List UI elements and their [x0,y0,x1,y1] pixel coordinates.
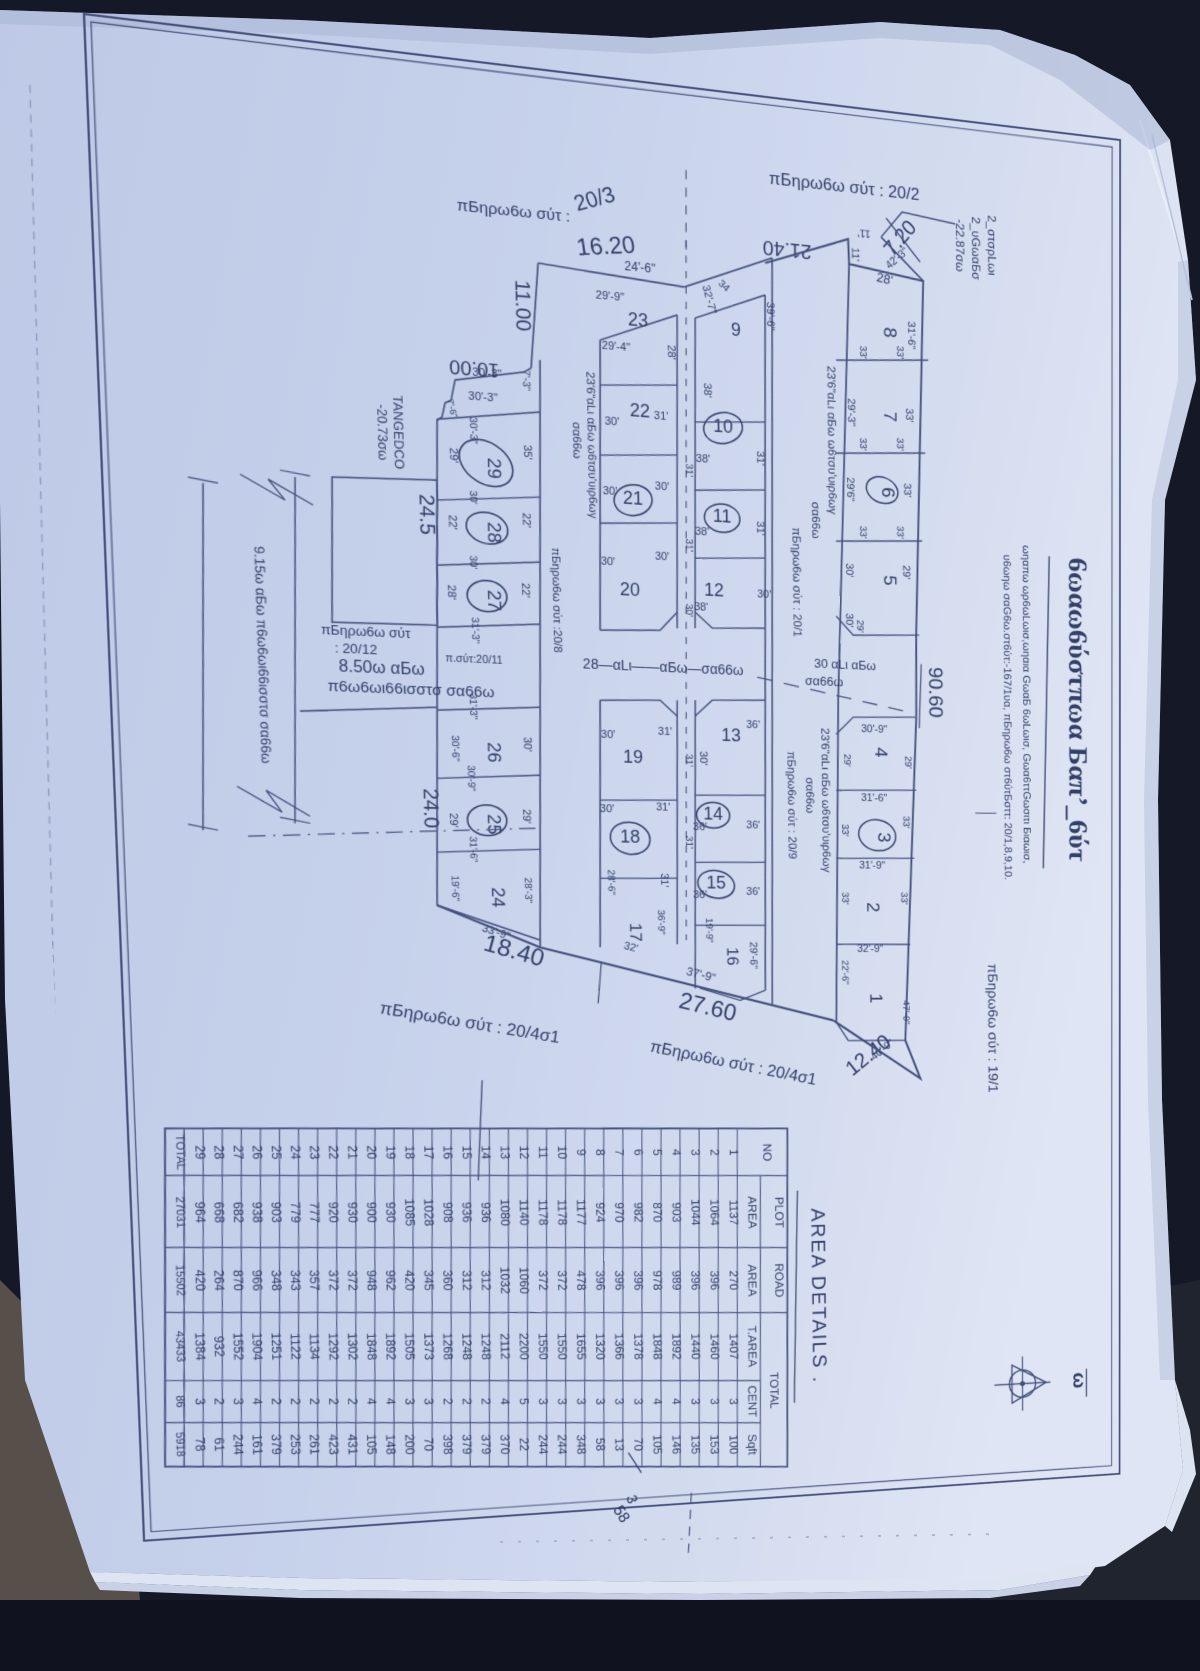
svg-text:28'-3": 28'-3" [522,877,535,903]
svg-text:29': 29' [842,754,853,767]
svg-text:396: 396 [707,1270,720,1290]
svg-text:π6ω6ωι66ισστσ σα66ω: π6ω6ωι66ισστσ σα66ω [327,677,495,701]
svg-text:146: 146 [669,1434,682,1454]
svg-text:29: 29 [483,457,505,479]
svg-text:31': 31' [659,873,672,887]
svg-text:ωηαπω ωρ6ωLωισ,ωηαια GωαБ 6: ωηαπω ωρ6ωLωισ,ωηαια GωαБ 6ωLωισ, Gωα6ττ… [1020,545,1032,864]
svg-text:370: 370 [497,1434,511,1455]
svg-text:-20.73σω: -20.73σω [374,404,390,461]
svg-text:372: 372 [555,1270,569,1291]
svg-text:5: 5 [880,575,900,587]
svg-text:1080: 1080 [497,1199,511,1227]
svg-text:920: 920 [325,1202,340,1223]
svg-text:7: 7 [880,411,900,423]
svg-text:1407: 1407 [726,1333,739,1360]
svg-text:31': 31' [755,451,768,466]
svg-text:3: 3 [874,832,894,843]
svg-text:1032: 1032 [497,1267,511,1295]
svg-text:1044: 1044 [688,1199,702,1226]
svg-text:33': 33' [901,816,912,829]
svg-text:4: 4 [364,1398,378,1406]
svg-text:30': 30' [603,484,618,498]
svg-text:AREA: AREA [745,1264,758,1297]
svg-text:σα66ω: σα66ω [570,421,584,459]
svg-text:398: 398 [440,1434,454,1455]
svg-text:30'-9": 30'-9" [465,765,478,791]
svg-text:AREA: AREA [745,1196,758,1229]
svg-text:1178: 1178 [554,1199,568,1226]
svg-text:2: 2 [440,1398,454,1406]
svg-text:1: 1 [866,993,886,1003]
svg-text:9.15ω αБω π6ω6ωι66ισστσ σα6: 9.15ω αБω π6ω6ωι66ισστσ σα66ω [251,546,274,764]
svg-text:30': 30' [844,563,856,578]
svg-text:28—αLι——αБω—σα66ω: 28—αLι——αБω—σα66ω [583,656,744,679]
svg-text:32'-7": 32'-7" [700,284,720,315]
svg-text:903: 903 [268,1202,283,1224]
svg-text:29': 29' [520,809,533,824]
svg-text:3: 3 [688,1398,701,1405]
svg-text:348: 348 [268,1270,283,1292]
svg-text:22'-6": 22'-6" [840,960,851,984]
svg-text:148: 148 [383,1434,398,1455]
svg-text:3: 3 [727,1398,740,1405]
svg-text:17: 17 [421,1145,435,1159]
svg-text:70: 70 [631,1437,644,1451]
svg-text:930: 930 [383,1202,398,1223]
svg-text:πБηρω6ω σύτ : 20/9: πБηρω6ω σύτ : 20/9 [784,751,798,859]
svg-text:27031: 27031 [173,1196,188,1228]
svg-text:: 20/12: : 20/12 [334,641,377,658]
svg-text:CENT: CENT [745,1385,758,1418]
svg-text:345: 345 [421,1270,436,1291]
svg-text:28': 28' [445,585,459,601]
svg-text:1366: 1366 [612,1333,626,1360]
svg-text:964: 964 [192,1201,208,1223]
svg-text:779: 779 [287,1202,302,1223]
svg-text:2: 2 [326,1398,340,1406]
svg-text:105: 105 [650,1434,663,1455]
svg-text:23: 23 [306,1145,321,1159]
svg-text:πБηρω6ω σύτ : 19/1: πБηρω6ω σύτ : 19/1 [985,964,1001,1093]
svg-text:3: 3 [536,1398,550,1405]
svg-text:16: 16 [440,1145,454,1159]
svg-text:31': 31' [656,800,670,813]
svg-text:1085: 1085 [402,1198,417,1226]
svg-text:19: 19 [383,1145,398,1159]
svg-text:σα66ω: σα66ω [803,777,816,813]
svg-text:30': 30' [467,490,480,504]
svg-text:1550: 1550 [535,1333,549,1361]
svg-text:24: 24 [488,887,509,908]
svg-text:15502: 15502 [173,1264,188,1296]
svg-text:870: 870 [650,1202,664,1222]
svg-text:TOTAL: TOTAL [767,1372,780,1409]
svg-text:2: 2 [707,1149,720,1156]
svg-text:39'-6": 39'-6" [764,302,777,332]
svg-text:396: 396 [631,1270,645,1291]
svg-text:πБηρω6ω σύτ : 20/1: πБηρω6ω σύτ : 20/1 [789,527,803,637]
svg-text:908: 908 [440,1202,455,1223]
svg-text:34: 34 [716,277,732,294]
svg-text:948: 948 [363,1270,378,1291]
svg-text:29'6": 29'6" [845,477,857,502]
svg-text:3: 3 [421,1398,435,1406]
svg-text:420: 420 [192,1269,208,1291]
svg-text:1848: 1848 [363,1332,378,1360]
svg-text:28': 28' [876,270,894,288]
svg-text:31': 31' [683,463,695,477]
svg-text:31': 31' [684,754,696,767]
svg-text:105: 105 [363,1434,378,1455]
svg-text:19: 19 [623,747,643,768]
svg-text:-22.87σω: -22.87σω [953,218,966,272]
svg-text:1505: 1505 [402,1332,417,1360]
svg-text:24.0: 24.0 [418,788,442,828]
svg-text:372: 372 [325,1270,340,1291]
svg-text:Sqft: Sqft [745,1434,758,1456]
svg-text:58: 58 [593,1437,607,1451]
svg-text:1122: 1122 [287,1333,302,1361]
svg-text:3: 3 [402,1398,416,1406]
svg-text:4: 4 [669,1398,682,1405]
svg-text:420: 420 [402,1270,417,1291]
svg-text:2: 2 [287,1398,302,1406]
svg-text:π.σύτ:20/11: π.σύτ:20/11 [445,652,503,667]
svg-text:ω: ω [1069,1372,1089,1389]
svg-text:43433: 43433 [173,1331,188,1363]
svg-text:312: 312 [478,1270,492,1291]
svg-text:2: 2 [478,1398,492,1405]
svg-text:4: 4 [249,1398,264,1406]
svg-text:9: 9 [574,1149,588,1156]
svg-text:1460: 1460 [707,1333,720,1360]
svg-text:5: 5 [650,1149,663,1156]
svg-text:31'-3": 31'-3" [469,617,482,644]
svg-text:38': 38' [695,524,709,538]
svg-text:10: 10 [555,1145,569,1159]
svg-text:1440: 1440 [688,1333,701,1360]
svg-text:1: 1 [726,1149,739,1156]
svg-text:11: 11 [713,505,732,527]
svg-text:4: 4 [669,1149,682,1156]
svg-text:19'-6": 19'-6" [449,875,462,901]
svg-text:28: 28 [211,1145,226,1160]
svg-text:6: 6 [631,1149,644,1156]
svg-text:90.60: 90.60 [924,667,945,719]
svg-text:38': 38' [702,383,715,399]
svg-text:27: 27 [230,1145,245,1160]
svg-text:AREA DETAILS .: AREA DETAILS . [807,1208,830,1384]
svg-text:244: 244 [230,1434,245,1456]
svg-text:33': 33' [895,526,906,540]
svg-text:18: 18 [402,1145,417,1159]
svg-text:78: 78 [192,1437,207,1452]
svg-text:29'-9": 29'-9" [596,288,625,304]
svg-text:100: 100 [726,1434,739,1454]
svg-text:360: 360 [440,1270,454,1291]
svg-text:31': 31' [654,409,669,423]
svg-text:58: 58 [609,1503,633,1526]
svg-text:30'-3": 30'-3" [472,365,502,381]
svg-text:33': 33' [899,892,910,905]
svg-text:1248: 1248 [478,1333,492,1361]
svg-text:12: 12 [516,1145,530,1159]
svg-text:8.50ω αБω: 8.50ω αБω [339,657,425,679]
svg-text:379: 379 [268,1434,283,1456]
svg-text:33': 33' [895,345,906,359]
svg-text:3: 3 [192,1398,207,1406]
svg-text:24: 24 [287,1145,302,1159]
svg-text:8: 8 [880,326,900,338]
svg-text:υ6ωηω σαG6ω.στ6ύτ:-167/1υα,: υ6ωηω σαG6ω.στ6ύτ:-167/1υα, πБηρω6ω στ6ύ… [1001,554,1014,880]
svg-text:932: 932 [211,1336,226,1358]
svg-text:962: 962 [383,1270,398,1291]
svg-text:343: 343 [287,1270,302,1292]
svg-text:372: 372 [344,1270,359,1291]
svg-text:12: 12 [704,579,724,600]
svg-text:28'-6": 28'-6" [605,870,617,896]
svg-text:30': 30' [601,728,616,741]
svg-text:11.00: 11.00 [510,279,534,332]
svg-text:21: 21 [344,1145,359,1159]
svg-text:20: 20 [364,1145,379,1159]
svg-text:37'-9": 37'-9" [685,965,717,985]
svg-text:22': 22' [446,514,460,530]
svg-text:3: 3 [230,1398,245,1406]
svg-text:30'-3": 30'-3" [468,389,498,405]
svg-text:1550: 1550 [554,1333,568,1360]
svg-text:2_υGωαБσ: 2_υGωαБσ [969,216,982,280]
svg-text:1378: 1378 [631,1333,645,1360]
svg-text:903: 903 [669,1202,682,1222]
svg-text:6ωαω6ύστπωα Бαπ’_6ύτ: 6ωαω6ύστπωα Бαπ’_6ύτ [1063,557,1093,862]
svg-text:61: 61 [211,1437,226,1452]
svg-text:2: 2 [345,1398,359,1406]
svg-text:31': 31' [658,725,672,738]
svg-text:2_στσρLωι: 2_στσρLωι [985,215,998,277]
svg-text:5: 5 [516,1398,530,1405]
svg-text:πБηρω6ω σύτ :: πБηρω6ω σύτ : [457,195,571,226]
svg-text:2: 2 [863,902,883,912]
svg-text:1655: 1655 [574,1333,588,1360]
svg-text:33': 33' [858,345,869,359]
svg-text:23'6"αLι αБω ω6τσυ'υιρ6ωγ: 23'6"αLι αБω ω6τσυ'υιρ6ωγ [824,365,839,515]
svg-text:σα66ω: σα66ω [805,674,843,690]
svg-text:1552: 1552 [230,1332,246,1361]
svg-text:36': 36' [746,885,760,898]
svg-text:264: 264 [211,1270,227,1292]
svg-text:σα66ω: σα66ω [809,501,822,539]
svg-text:900: 900 [363,1202,378,1223]
svg-text:23'6"αLι αБω ω6τσυ'υιρ6ωγ: 23'6"αLι αБω ω6τσυ'υιρ6ωγ [584,371,600,519]
svg-text:86: 86 [174,1395,188,1408]
svg-text:30': 30' [655,479,670,493]
svg-text:1134: 1134 [306,1333,321,1360]
svg-text:372: 372 [535,1270,549,1291]
svg-text:1268: 1268 [440,1332,455,1360]
svg-text:161: 161 [249,1434,264,1456]
svg-text:1177: 1177 [574,1199,588,1226]
svg-text:47'-0": 47'-0" [901,1000,912,1024]
svg-text:24.5: 24.5 [414,493,438,535]
svg-text:682: 682 [230,1202,245,1224]
svg-text:1302: 1302 [344,1332,359,1360]
svg-text:668: 668 [211,1202,227,1224]
svg-text:πБηρω6ω σύτ: πБηρω6ω σύτ [321,622,411,641]
svg-text:936: 936 [459,1202,473,1223]
svg-text:11: 11 [535,1146,549,1159]
svg-text:29': 29' [447,813,461,828]
svg-text:30'-9": 30'-9" [861,722,888,735]
svg-text:930: 930 [344,1202,359,1223]
svg-text:7: 7 [612,1149,626,1156]
svg-text:8: 8 [593,1149,607,1156]
svg-text:32': 32' [623,939,640,955]
svg-text:1848: 1848 [650,1333,664,1360]
svg-text:30': 30' [684,603,696,617]
svg-text:431: 431 [344,1434,359,1455]
svg-text:29': 29' [447,447,461,463]
svg-text:1904: 1904 [249,1332,265,1361]
svg-text:924: 924 [593,1202,607,1223]
svg-text:24'-6": 24'-6" [624,260,655,277]
svg-text:396: 396 [593,1270,607,1291]
svg-text:396: 396 [612,1270,626,1291]
svg-text:2200: 2200 [516,1333,530,1361]
svg-text:30': 30' [605,414,620,428]
svg-text:1137: 1137 [726,1199,739,1225]
svg-text:30': 30' [698,751,711,766]
svg-text:30': 30' [521,737,534,752]
svg-text:33': 33' [858,526,869,540]
svg-text:135: 135 [688,1434,701,1454]
svg-text:4: 4 [383,1398,397,1406]
svg-text:30': 30' [844,613,856,628]
svg-text:3: 3 [707,1398,720,1405]
svg-text:20/3: 20/3 [571,183,619,217]
svg-text:29'-4": 29'-4" [602,338,631,354]
svg-text:33': 33' [902,483,914,498]
svg-text:2: 2 [459,1398,473,1406]
svg-text:1373: 1373 [421,1332,436,1360]
svg-text:1384: 1384 [191,1332,207,1361]
svg-text:9: 9 [731,319,741,341]
svg-text:1251: 1251 [268,1332,283,1361]
svg-text:4: 4 [650,1398,663,1405]
svg-text:20: 20 [620,579,640,601]
svg-text:36': 36' [693,888,707,901]
svg-text:29': 29' [901,565,913,580]
svg-text:28: 28 [483,521,505,543]
svg-text:1178: 1178 [535,1199,549,1226]
svg-text:30': 30' [655,549,670,563]
svg-text:16.20: 16.20 [574,231,636,261]
svg-text:396: 396 [688,1270,701,1290]
svg-text:978: 978 [650,1270,664,1291]
svg-text:31'-6": 31'-6" [906,321,918,350]
svg-text:11': 11' [858,227,871,241]
svg-text:36': 36' [693,820,707,833]
svg-text:22: 22 [325,1145,340,1159]
svg-text:261: 261 [306,1434,321,1455]
svg-text:29': 29' [903,756,914,769]
svg-text:982: 982 [631,1202,645,1223]
svg-text:16: 16 [723,947,741,965]
svg-text:270: 270 [726,1270,739,1290]
svg-text:26: 26 [483,742,505,763]
svg-text:1248: 1248 [459,1333,474,1361]
svg-text:36'-9": 36'-9" [655,910,667,935]
svg-text:30'-3": 30'-3" [467,417,480,445]
svg-text:27.60: 27.60 [676,987,739,1027]
svg-text:989: 989 [669,1270,682,1290]
svg-text:29'-3": 29'-3" [846,398,858,427]
svg-text:153: 153 [707,1434,720,1454]
svg-text:18: 18 [620,826,640,847]
svg-text:TANGEDCO: TANGEDCO [389,395,406,470]
svg-text:3: 3 [688,1149,701,1156]
svg-text:30 αLι αБω: 30 αLι αБω [814,657,876,674]
svg-text:30': 30' [757,588,771,601]
svg-text:36': 36' [746,718,760,731]
svg-text:3: 3 [612,1398,625,1405]
svg-text:970: 970 [612,1202,626,1223]
svg-text:1060: 1060 [516,1267,530,1295]
svg-text:36': 36' [746,818,760,831]
svg-text:3: 3 [593,1398,606,1405]
svg-text:32'-9": 32'-9" [857,943,883,955]
svg-text:5918: 5918 [173,1432,188,1457]
svg-text:3: 3 [631,1398,644,1405]
svg-text:1140: 1140 [516,1199,530,1226]
svg-text:200: 200 [402,1434,417,1455]
svg-text:70: 70 [421,1437,435,1451]
svg-text:31': 31' [684,836,696,849]
svg-text:1028: 1028 [421,1198,436,1226]
svg-text:30': 30' [601,554,616,568]
svg-text:7'-3": 7'-3" [520,369,533,391]
svg-text:966: 966 [249,1270,264,1292]
svg-text:33': 33' [840,892,851,905]
svg-text:30': 30' [600,802,615,815]
svg-text:1892: 1892 [383,1332,398,1360]
svg-text:23'6"αLι αБω ω6τσυ'υιρ6ωγ: 23'6"αLι αБω ω6τσυ'υιρ6ωγ [818,728,832,874]
svg-text:3: 3 [574,1398,588,1405]
svg-text:38': 38' [696,451,710,465]
svg-text:357: 357 [306,1270,321,1291]
svg-text:22': 22' [519,583,532,598]
svg-text:πБηρω6ω σύτ : 20/4σ1: πБηρω6ω σύτ : 20/4σ1 [378,999,561,1047]
svg-text:379: 379 [459,1434,473,1455]
svg-text:777: 777 [306,1202,321,1223]
svg-text:33': 33' [858,437,869,451]
svg-text:21: 21 [623,487,644,509]
svg-text:30': 30' [467,555,480,569]
svg-text:T.AREA: T.AREA [745,1326,758,1368]
svg-text:10: 10 [713,415,733,437]
svg-text:348: 348 [574,1434,588,1455]
svg-text:1892: 1892 [669,1333,683,1360]
svg-text:15: 15 [706,872,726,892]
svg-text:7'-6": 7'-6" [444,398,460,419]
svg-text:33': 33' [840,824,851,837]
svg-text:1320: 1320 [593,1333,607,1360]
svg-text:423: 423 [325,1434,340,1455]
svg-text:11': 11' [850,247,862,262]
svg-text:4: 4 [497,1398,511,1405]
svg-text:244: 244 [535,1434,549,1455]
svg-text:2112: 2112 [497,1333,511,1360]
